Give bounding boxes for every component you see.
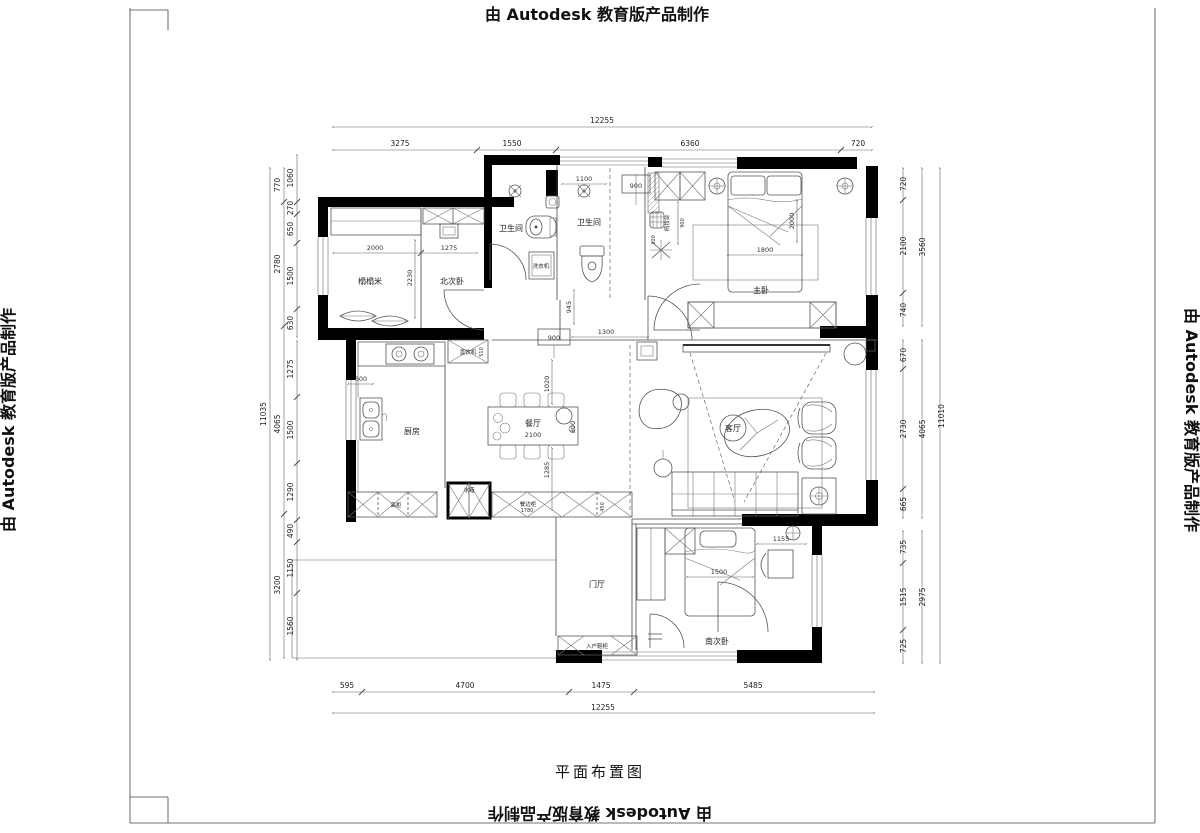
label-kitchen: 厨房	[404, 426, 420, 436]
dim-right-i6: 665	[899, 497, 908, 512]
master-cabinets	[655, 172, 705, 200]
window-kitchen-left	[346, 380, 356, 440]
floor-lamp	[654, 450, 672, 477]
side-table-compass	[802, 478, 836, 514]
label-tatami: 榻榻米	[358, 276, 382, 286]
dim-top-2: 1550	[502, 139, 521, 148]
dim-left-o3: 4065	[273, 414, 282, 433]
watermark-bottom: 由 Autodesk 教育版产品制作	[488, 804, 712, 823]
wardrobe-north	[423, 208, 484, 224]
dim-right-i2: 2100	[899, 236, 908, 255]
dim-left-i3: 650	[286, 222, 295, 237]
dim-left-o1: 770	[273, 178, 282, 193]
dim-right-o3: 2975	[918, 587, 927, 606]
vanity-cabinet	[622, 175, 650, 205]
label-sideboard: 餐边柜	[520, 500, 537, 508]
dim-top-total: 12255	[590, 116, 614, 125]
sideboard-row	[492, 492, 632, 517]
lounge-chair	[639, 389, 689, 428]
dim-right-i7: 735	[899, 540, 908, 555]
dim-plant: 300	[651, 235, 657, 245]
dim-dining-bottom: 1285	[543, 462, 551, 479]
dim-bottom-total: 12255	[591, 703, 615, 712]
label-dining: 餐厅	[525, 419, 541, 428]
dim-dispenser: 510	[479, 347, 485, 357]
dim-left-i4: 1500	[286, 266, 295, 285]
watermark-top: 由 Autodesk 教育版产品制作	[485, 5, 709, 24]
shower-head-left	[509, 185, 521, 197]
doors	[444, 244, 768, 648]
dim-top-1: 3275	[390, 139, 409, 148]
master-wardrobe	[688, 302, 836, 328]
dims-left: 11035 770 2780 4065 3200 1060 270 650 15…	[259, 155, 300, 660]
dim-left-i1: 1060	[286, 168, 295, 187]
window-bath-top	[560, 157, 648, 165]
master-rug	[693, 225, 818, 280]
dim-dresser-d: 900	[680, 218, 686, 228]
south-desk	[761, 550, 793, 578]
dims-right: 11010 3560 4065 2975 720 2100 740 670 27…	[899, 168, 946, 663]
dim-sideboard-d: 450	[600, 502, 606, 512]
dim-left-i11: 1560	[286, 616, 295, 635]
dim-vanity: 900	[630, 182, 642, 190]
dim-bath-w: 1100	[576, 175, 593, 183]
window-living-right	[866, 370, 876, 480]
dim-bed-l: 2000	[788, 213, 796, 230]
label-washing-machine: 洗衣机	[533, 262, 550, 270]
room-labels: 榻榻米 北次卧 卫生间 卫生间 主卧 厨房 餐厅 客厅 门厅 南次卧	[358, 217, 769, 646]
watermark-right: 由 Autodesk 教育版产品制作	[1182, 308, 1200, 532]
dim-hall-box: 900	[548, 334, 560, 342]
master-bed	[728, 172, 802, 292]
label-tall-cabinet: 高柜	[390, 501, 402, 509]
label-fridge: 冰箱	[463, 486, 475, 494]
label-water-dispenser: 直饮机	[460, 348, 477, 356]
window-tatami-left	[318, 237, 328, 295]
armchair-1	[798, 402, 836, 434]
dim-right-total: 11010	[937, 404, 946, 428]
toilet-right	[580, 246, 604, 282]
dim-tatami-d: 2230	[406, 270, 414, 287]
toilet-left	[526, 216, 556, 238]
dim-table-w: 2100	[525, 431, 542, 439]
label-master-bedroom: 主卧	[753, 285, 769, 295]
dim-left-total: 11035	[259, 402, 268, 426]
dresser-stool	[650, 212, 664, 228]
coffee-table	[719, 403, 794, 464]
door-north-bedroom	[444, 290, 484, 330]
shower-head-right	[578, 185, 590, 197]
dim-left-i8: 1290	[286, 482, 295, 501]
projector-screen	[683, 345, 830, 352]
dim-left-i7: 1500	[286, 420, 295, 439]
dim-top-3: 6360	[680, 139, 699, 148]
dim-right-i3: 740	[899, 303, 908, 318]
label-bathroom-left: 卫生间	[499, 223, 523, 233]
ceiling-light-master-2	[837, 178, 853, 194]
dim-left-i2: 270	[286, 201, 295, 216]
dim-bottom-3: 1475	[591, 681, 610, 690]
dim-right-i8: 1515	[899, 587, 908, 606]
dim-left-o2: 2780	[273, 254, 282, 273]
dim-right-i9: 725	[899, 639, 908, 654]
label-north-bedroom: 北次卧	[440, 276, 464, 286]
sofa	[672, 472, 798, 516]
dim-bottom-2: 4700	[455, 681, 474, 690]
label-south-bedroom: 南次卧	[705, 636, 729, 646]
drawing-sheet: 由 Autodesk 教育版产品制作 由 Autodesk 教育版产品制作 由 …	[0, 0, 1200, 833]
dim-bottom-4: 5485	[743, 681, 762, 690]
dim-sideboard-w: 1780	[521, 508, 534, 514]
door-bath-right	[648, 296, 692, 340]
stove	[358, 342, 445, 366]
dim-left-o4: 3200	[273, 575, 282, 594]
dim-desk: 1155	[773, 535, 790, 543]
south-wardrobe	[637, 528, 695, 600]
dim-left-i6: 1275	[286, 359, 295, 378]
window-master-right	[866, 218, 876, 295]
nightstand-north	[440, 224, 458, 238]
door-south-bedroom	[718, 582, 768, 632]
door-entry	[648, 614, 684, 648]
dim-dining-top: 1020	[543, 376, 551, 393]
dim-right-i5: 2730	[899, 419, 908, 438]
dim-left-i10: 1150	[286, 558, 295, 577]
dim-north-w: 1275	[441, 244, 458, 252]
label-bathroom-right: 卫生间	[577, 217, 601, 227]
dim-right-i1: 720	[899, 177, 908, 192]
dim-tatami-w: 2000	[367, 244, 384, 252]
partitions	[292, 165, 878, 658]
dim-top-4: 720	[851, 139, 866, 148]
label-dresser: 梳妆台	[663, 214, 671, 231]
dim-right-o1: 3560	[918, 237, 927, 256]
dim-hall-w: 1300	[598, 328, 615, 336]
ceiling-light-master-1	[709, 178, 725, 194]
dim-right-i4: 670	[899, 348, 908, 363]
dim-right-o2: 4065	[918, 419, 927, 438]
window-south-right	[812, 555, 822, 627]
window-south-bottom	[602, 652, 737, 660]
dim-bed-w: 1800	[757, 246, 774, 254]
label-foyer: 门厅	[589, 579, 605, 589]
dim-hall-h: 945	[565, 301, 573, 313]
dim-bottom-1: 595	[340, 681, 355, 690]
dim-table-d: 800	[569, 421, 577, 433]
dim-south-bed: 1500	[711, 568, 728, 576]
plant-leaves	[340, 311, 408, 326]
dim-counter: 600	[355, 375, 367, 383]
label-living: 客厅	[725, 423, 741, 433]
page-title: 平面布置图	[555, 763, 645, 781]
dim-left-i5: 630	[286, 316, 295, 331]
tatami-bed	[331, 208, 421, 235]
window-master-top	[662, 159, 737, 167]
label-shoe-cabinet: 入户鞋柜	[586, 642, 609, 650]
watermark-left: 由 Autodesk 教育版产品制作	[0, 308, 18, 532]
dim-left-i9: 490	[286, 524, 295, 539]
dims-top: 12255 3275 1550 6360 720	[333, 116, 872, 153]
door-bath-left	[490, 244, 526, 280]
media-box	[637, 342, 657, 360]
armchair-2	[798, 437, 836, 469]
kitchen-sink	[360, 398, 387, 440]
projection-lines	[690, 353, 826, 502]
dims-bottom: 595 4700 1475 5485 12255	[333, 681, 874, 713]
